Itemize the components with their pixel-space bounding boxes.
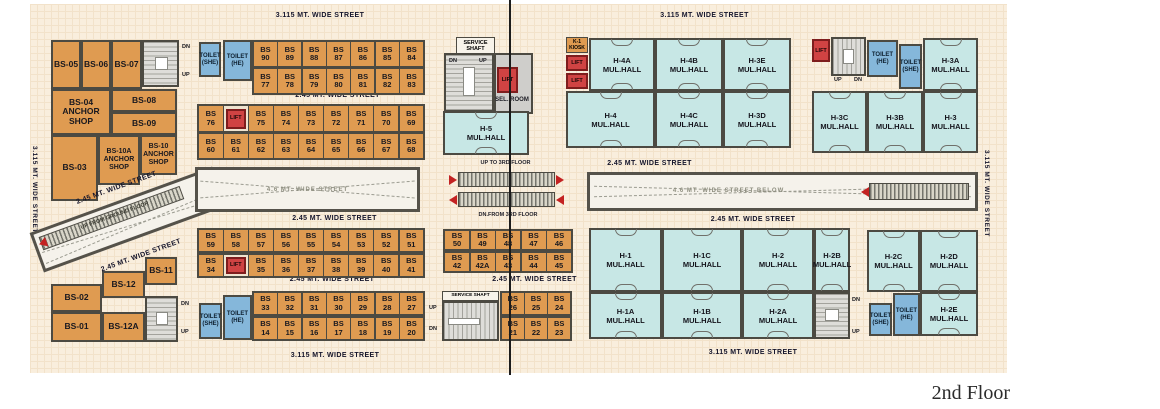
shop-unit[interactable]: BS 52 [374,230,398,251]
shop-unit[interactable]: BS 31 [303,293,326,314]
shop-unit[interactable]: BS 73 [299,106,323,131]
stair-dn-label: DN [182,44,190,50]
street-label-d2: 2.45 MT. WIDE STREET [462,276,607,283]
stair-up-label: UP [429,305,437,311]
shop-bs01[interactable]: BS-01 [51,312,102,342]
stair-dn-label: DN [449,58,457,64]
staircase-centre-bottom[interactable] [442,301,499,341]
shop-unit[interactable]: BS 71 [349,106,373,131]
hall-h4[interactable]: H-4 MUL.HALL [566,91,655,148]
hall-h3[interactable]: H-3 MUL.HALL [923,91,978,153]
shop-unit[interactable]: BS 84 [400,42,423,66]
shop-unit[interactable]: BS 88 [303,42,326,66]
staircase-top-left[interactable] [142,40,179,87]
escalator-up-label: UP TO 3RD FLOOR [463,160,548,166]
escalator-dn-label: DN.FROM 3RD FLOOR [463,212,553,218]
kiosk-k1[interactable]: K-1 KIOSK [566,37,588,53]
shop-unit[interactable]: BS 77 [254,69,277,93]
escalator-arrow [861,187,869,197]
shop-unit[interactable]: BS 60 [199,134,223,158]
shop-unit[interactable]: BS 87 [327,42,350,66]
stair-up-label: UP [834,77,842,83]
shop-unit[interactable]: BS 61 [224,134,248,158]
shop-unit[interactable]: BS 15 [278,318,301,339]
shop-unit[interactable]: BS 38 [324,255,348,276]
lift-right-3[interactable]: LIFT [812,39,830,62]
shop-unit[interactable]: BS 69 [400,106,424,131]
bs-row-76-69: BS 76LIFTBS 75BS 74BS 73BS 72BS 71BS 70B… [197,104,425,133]
shop-unit[interactable]: BS 45 [547,253,571,271]
shop-unit[interactable]: BS 70 [374,106,398,131]
stair-dn-label: DN [854,77,862,83]
shop-unit[interactable]: BS 53 [349,230,373,251]
toilet-he-bottom[interactable]: TOILET (HE) [223,295,252,340]
shop-unit[interactable]: BS 68 [400,134,424,158]
shop-unit[interactable]: BS 48 [496,231,520,249]
shop-unit[interactable]: BS 23 [548,318,570,339]
escalator-down-belt[interactable] [458,192,555,207]
shop-unit[interactable]: BS 35 [249,255,273,276]
shop-bs04-anchor[interactable]: BS-04 ANCHOR SHOP [51,89,111,135]
shop-unit[interactable]: BS 78 [278,69,301,93]
bs-row-33-27: BS 33BS 32BS 31BS 30BS 29BS 28BS 27 [252,291,425,316]
shop-unit[interactable]: BS 57 [249,230,273,251]
shop-unit[interactable]: BS 28 [376,293,399,314]
lift[interactable]: LIFT [224,255,248,276]
staircase-bottom-right[interactable] [814,292,850,339]
toilet-she-top[interactable]: TOILET (SHE) [199,42,221,77]
shop-unit[interactable]: BS 14 [254,318,277,339]
hall-h1b[interactable]: H-1B MUL.HALL [662,292,742,339]
atrium-left-label: 4.6 MT. WIDE STREET [198,187,417,193]
escalator-arrow [449,195,457,205]
escalator-atrium-right[interactable] [869,183,969,200]
shop-unit[interactable]: BS 20 [400,318,423,339]
shop-unit[interactable]: BS 83 [400,69,423,93]
shop-unit[interactable]: BS 33 [254,293,277,314]
section-cut-line [509,0,511,375]
shop-unit[interactable]: BS 21 [502,318,524,339]
shop-unit[interactable]: BS 64 [299,134,323,158]
toilet-he-bottom-right[interactable]: TOILET (HE) [893,293,920,336]
shop-unit[interactable]: BS 24 [548,293,570,314]
hall-h1c[interactable]: H-1C MUL.HALL [662,228,742,292]
street-label-bottom-left: 3.115 MT. WIDE STREET [245,352,425,359]
shop-unit[interactable]: BS 55 [299,230,323,251]
escalator-arrow [556,175,564,185]
lift-box[interactable]: LIFT [226,109,245,129]
shop-unit[interactable]: BS 16 [303,318,326,339]
escalator-arrow [449,175,457,185]
hall-h2d[interactable]: H-2D MUL.HALL [920,230,978,292]
hall-h1[interactable]: H-1 MUL.HALL [589,228,662,292]
shop-bs12a[interactable]: BS-12A [102,312,145,342]
shop-unit[interactable]: BS 66 [349,134,373,158]
shop-unit[interactable]: BS 19 [376,318,399,339]
street-label-right-vertical: 3.115 MT. WIDE STREET [983,150,990,265]
shop-unit[interactable]: BS 27 [400,293,423,314]
stair-up-label: UP [479,58,487,64]
shop-unit[interactable]: BS 82 [376,69,399,93]
hall-h2[interactable]: H-2 MUL.HALL [742,228,814,292]
toilet-she-bottom[interactable]: TOILET (SHE) [199,303,222,339]
stair-landing [463,67,476,96]
shop-unit[interactable]: BS 90 [254,42,277,66]
shop-unit[interactable]: BS 41 [400,255,424,276]
shop-unit[interactable]: BS 76 [199,106,223,131]
lift-box[interactable]: LIFT [226,257,245,274]
stair-dn-label: DN [429,326,437,332]
street-label-c: 2.45 MT. WIDE STREET [242,215,427,222]
shop-bs07[interactable]: BS-07 [111,40,142,89]
lift-right-2[interactable]: LIFT [566,73,588,89]
hall-h3a[interactable]: H-3A MUL.HALL [923,38,978,91]
stair-landing [843,49,854,64]
escalator-arrow [556,195,564,205]
shop-unit[interactable]: BS 59 [199,230,223,251]
service-shaft-top: SERVICE SHAFT [456,37,495,54]
shop-unit[interactable]: BS 86 [351,42,374,66]
sel-room-label: SEL. ROOM [492,97,532,103]
street-label-r1: 2.45 MT. WIDE STREET [592,160,707,167]
hall-h2b[interactable]: H-2B MUL.HALL [814,228,850,292]
stair-landing [448,318,480,324]
shop-unit[interactable]: BS 39 [349,255,373,276]
shop-unit[interactable]: BS 63 [274,134,298,158]
shop-unit[interactable]: BS 22 [525,318,547,339]
street-label-top-left: 3.115 MT. WIDE STREET [230,12,410,19]
shop-unit[interactable]: BS 43 [496,253,520,271]
hall-h3c[interactable]: H-3C MUL.HALL [812,91,867,153]
shop-unit[interactable]: BS 51 [400,230,424,251]
central-escalators[interactable] [458,169,555,211]
bs-row-77-83: BS 77BS 78BS 79BS 80BS 81BS 82BS 83 [252,67,425,95]
bs-row-50-46: BS 50BS 49BS 48BS 47BS 46 [443,229,573,251]
shop-unit[interactable]: BS 29 [351,293,374,314]
shop-unit[interactable]: BS 81 [351,69,374,93]
shop-unit[interactable]: BS 85 [376,42,399,66]
shop-unit[interactable]: BS 30 [327,293,350,314]
lift-centre[interactable]: LIFT [497,67,518,93]
shop-unit[interactable]: BS 56 [274,230,298,251]
hall-h2c[interactable]: H-2C MUL.HALL [867,230,920,292]
stair-landing [155,57,168,71]
atrium-left: 4.6 MT. WIDE STREET [195,167,420,212]
bs-row-26-24: BS 26BS 25BS 24 [500,291,572,316]
lift-right-1[interactable]: LIFT [566,55,588,71]
bs-row-60-68: BS 60BS 61BS 62BS 63BS 64BS 65BS 66BS 67… [197,132,425,160]
atrium-right-label: 4.6 MT. WIDE STREET BELOW [659,188,798,194]
bs-row-42-45: BS 42BS 42ABS 43BS 44BS 45 [443,251,573,273]
street-label-bottom-right: 3.115 MT. WIDE STREET [688,349,818,356]
shop-unit[interactable]: BS 65 [324,134,348,158]
shop-bs08[interactable]: BS-08 [111,89,177,112]
shop-unit[interactable]: BS 37 [299,255,323,276]
shop-unit[interactable]: BS 34 [199,255,223,276]
shop-bs06[interactable]: BS-06 [81,40,111,89]
service-shaft-bottom: SERVICE SHAFT [442,291,499,301]
staircase-top-right[interactable] [831,37,866,76]
hall-h3e[interactable]: H-3E MUL.HALL [723,38,791,91]
floor-caption: 2nd Floor [860,382,1010,405]
escalator-up-belt[interactable] [458,172,555,187]
stair-dn-label: DN [852,297,860,303]
shop-unit[interactable]: BS 89 [278,42,301,66]
shop-unit[interactable]: BS 32 [278,293,301,314]
hall-h4b[interactable]: H-4B MUL.HALL [655,38,723,91]
hall-h3d[interactable]: H-3D MUL.HALL [723,91,791,148]
lift[interactable]: LIFT [224,106,248,131]
shop-unit[interactable]: BS 67 [374,134,398,158]
stair-up-label: UP [181,329,189,335]
toilet-she-bottom-right[interactable]: TOILET (SHE) [869,303,892,336]
stair-up-label: UP [182,72,190,78]
shop-bs05[interactable]: BS-05 [51,40,81,89]
shop-unit[interactable]: BS 79 [303,69,326,93]
toilet-he-top[interactable]: TOILET (HE) [223,40,252,81]
shop-unit[interactable]: BS 72 [324,106,348,131]
bs-row-14-20: BS 14BS 15BS 16BS 17BS 18BS 19BS 20 [252,316,425,341]
bs-row-59-51: BS 59BS 58BS 57BS 56BS 55BS 54BS 53BS 52… [197,228,425,253]
stair-dn-label: DN [181,301,189,307]
shop-unit[interactable]: BS 18 [351,318,374,339]
shop-unit[interactable]: BS 49 [471,231,495,249]
shop-bs09[interactable]: BS-09 [111,112,177,135]
toilet-he-top-right[interactable]: TOILET (HE) [867,40,898,77]
shop-unit[interactable]: BS 74 [274,106,298,131]
hall-h5[interactable]: H-5 MUL.HALL [443,111,529,155]
hall-h3b[interactable]: H-3B MUL.HALL [867,91,923,153]
shop-unit[interactable]: BS 17 [327,318,350,339]
atrium-right: 4.6 MT. WIDE STREET BELOW [587,172,978,211]
shop-unit[interactable]: BS 58 [224,230,248,251]
street-label-r2: 2.45 MT. WIDE STREET [688,216,818,223]
shop-unit[interactable]: BS 54 [324,230,348,251]
hall-h4a[interactable]: H-4A MUL.HALL [589,38,655,91]
bs-row-34-41: BS 34LIFTBS 35BS 36BS 37BS 38BS 39BS 40B… [197,253,425,278]
bs-row-21-23: BS 21BS 22BS 23 [500,316,572,341]
stair-landing [156,312,168,325]
shop-unit[interactable]: BS 36 [274,255,298,276]
stair-up-label: UP [852,329,860,335]
toilet-she-top-right[interactable]: TOILET (SHE) [899,44,922,89]
hall-h4c[interactable]: H-4C MUL.HALL [655,91,723,148]
shop-unit[interactable]: BS 42 [445,253,469,271]
stair-landing [825,309,839,320]
shop-unit[interactable]: BS 50 [445,231,469,249]
shop-unit[interactable]: BS 46 [547,231,571,249]
street-label-top-right: 3.115 MT. WIDE STREET [612,12,797,19]
hall-h1a[interactable]: H-1A MUL.HALL [589,292,662,339]
shop-unit[interactable]: BS 42A [471,253,495,271]
floor-plan-page: 3.115 MT. WIDE STREET 3.115 MT. WIDE STR… [0,0,1160,409]
shop-unit[interactable]: BS 25 [525,293,547,314]
shop-unit[interactable]: BS 40 [374,255,398,276]
shop-unit[interactable]: BS 26 [502,293,524,314]
staircase-bottom-left[interactable] [145,296,178,342]
hall-h2e[interactable]: H-2E MUL.HALL [920,292,978,336]
shop-unit[interactable]: BS 47 [522,231,546,249]
bs-row-90-84: BS 90BS 89BS 88BS 87BS 86BS 85BS 84 [252,40,425,68]
shop-unit[interactable]: BS 75 [249,106,273,131]
hall-h2a[interactable]: H-2A MUL.HALL [742,292,814,339]
shop-unit[interactable]: BS 44 [522,253,546,271]
shop-unit[interactable]: BS 80 [327,69,350,93]
shop-unit[interactable]: BS 62 [249,134,273,158]
